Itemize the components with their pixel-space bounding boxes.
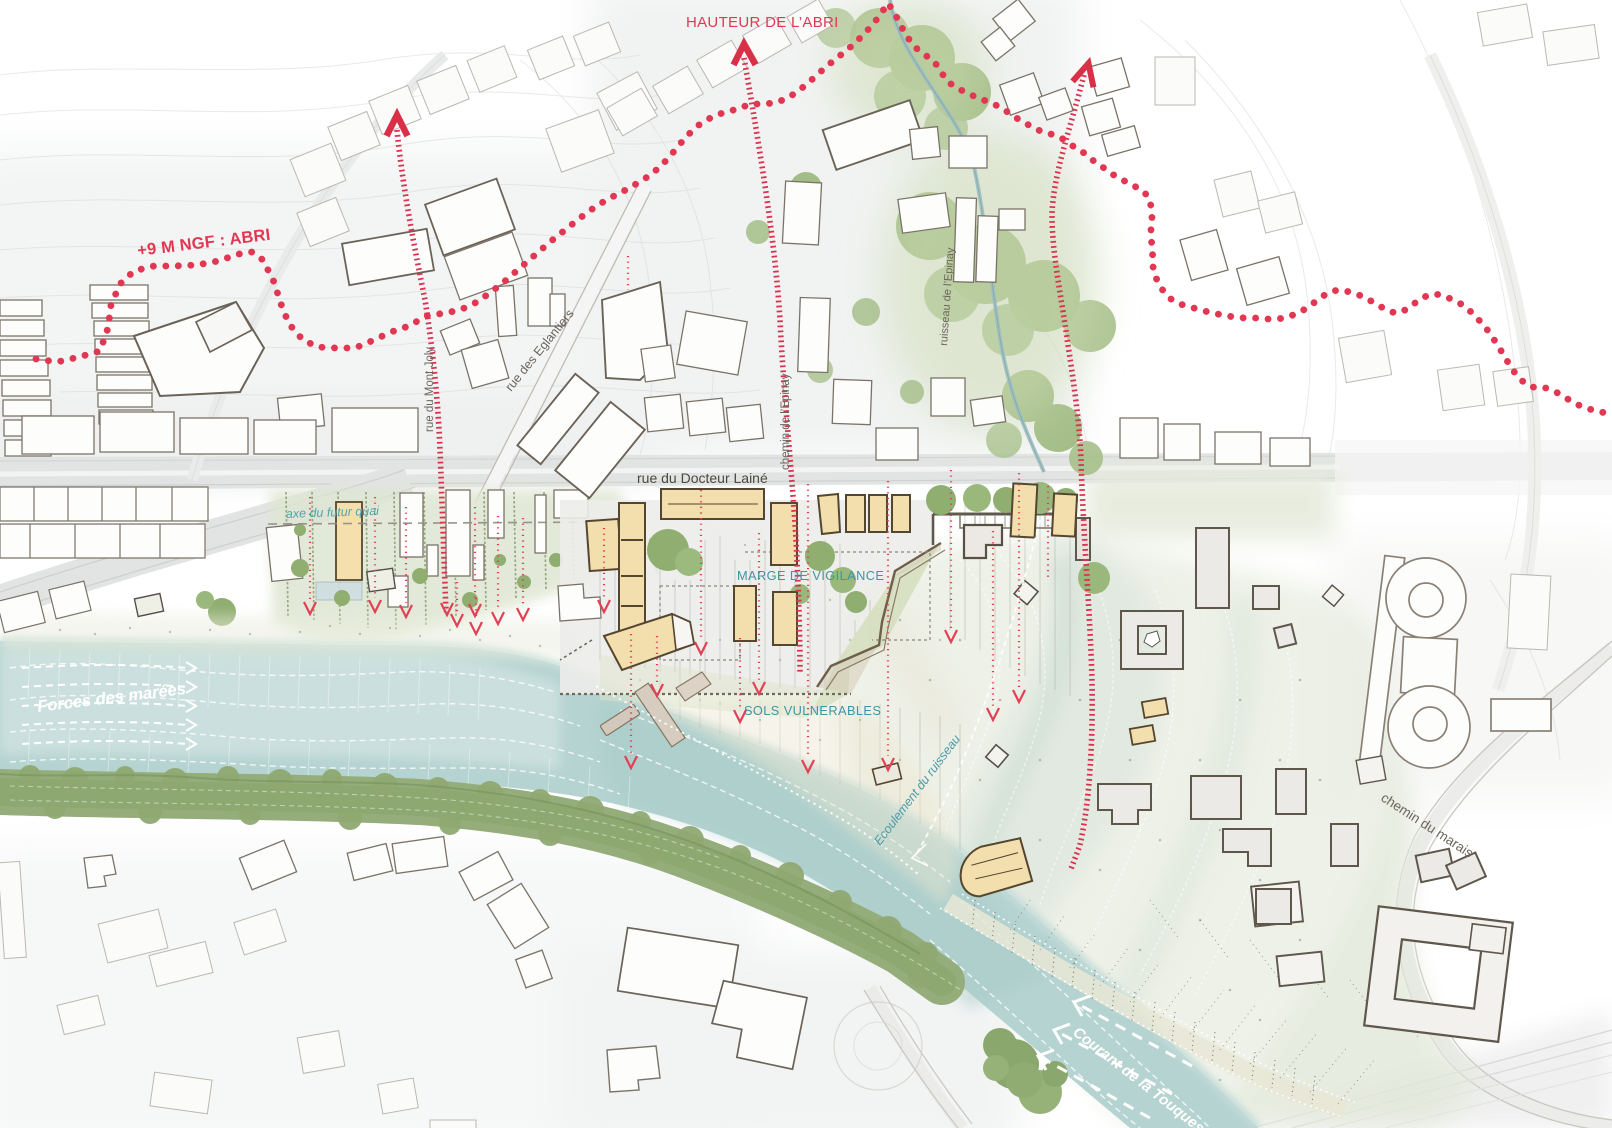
svg-text:HAUTEUR DE L’ABRI: HAUTEUR DE L’ABRI [686, 14, 839, 31]
svg-text:rue du Mont Joly: rue du Mont Joly [424, 347, 436, 432]
svg-text:chemin de l’Epinay: chemin de l’Epinay [780, 373, 792, 470]
svg-text:SOLS VULNERABLES: SOLS VULNERABLES [744, 703, 881, 718]
svg-text:MARGE DE VIGILANCE: MARGE DE VIGILANCE [737, 568, 884, 583]
svg-text:rue du Docteur Lainé: rue du Docteur Lainé [637, 470, 768, 486]
